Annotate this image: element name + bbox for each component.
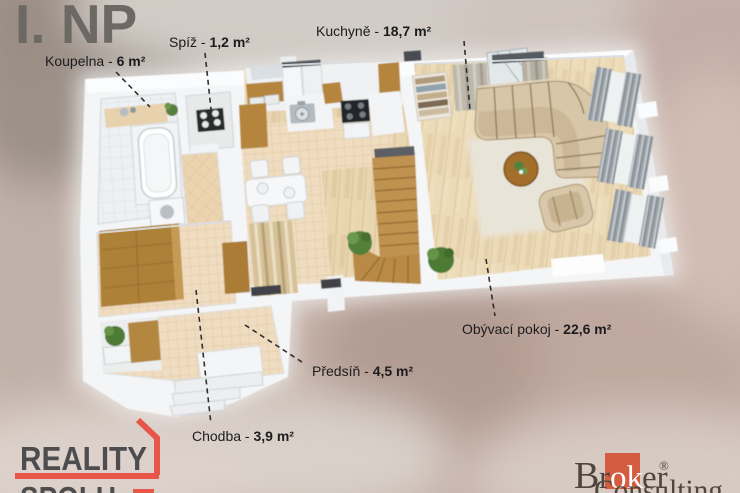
svg-text:Spíž - 1,2 m²: Spíž - 1,2 m²: [169, 34, 250, 50]
svg-text:Kuchyně - 18,7 m²: Kuchyně - 18,7 m²: [316, 23, 432, 39]
svg-text:Chodba - 3,9 m²: Chodba - 3,9 m²: [192, 428, 294, 444]
svg-text:Předsíň - 4,5 m²: Předsíň - 4,5 m²: [312, 363, 414, 379]
svg-text:REALITY: REALITY: [20, 440, 147, 477]
svg-text:SPOLU: SPOLU: [20, 480, 116, 493]
svg-text:®: ®: [659, 458, 669, 473]
svg-text:Koupelna - 6 m²: Koupelna - 6 m²: [45, 53, 146, 69]
svg-text:I. NP: I. NP: [15, 0, 137, 55]
svg-text:Consulting: Consulting: [594, 474, 723, 493]
svg-text:Obývací pokoj - 22,6 m²: Obývací pokoj - 22,6 m²: [462, 321, 612, 337]
